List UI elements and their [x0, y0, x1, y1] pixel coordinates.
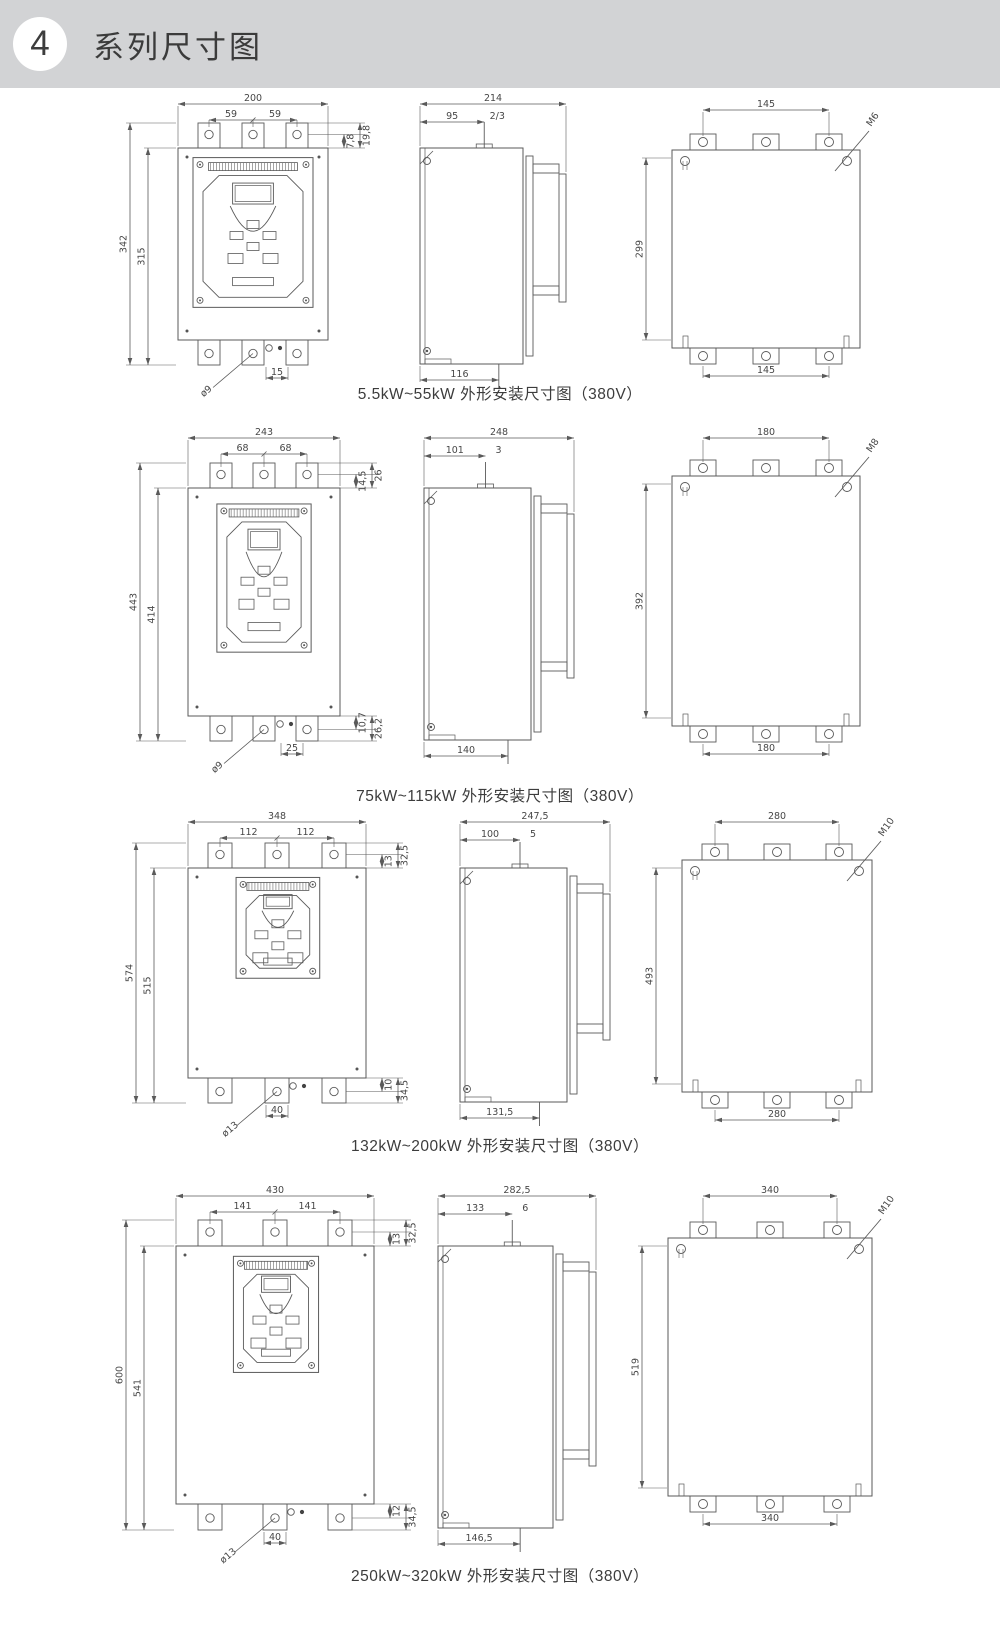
- side-view-drawing: 247,51005131,5: [434, 808, 626, 1130]
- dim-label: 40: [271, 1105, 283, 1116]
- dim-label: 95: [446, 111, 458, 122]
- dim-label: 214: [484, 93, 502, 104]
- dim-label: M10: [876, 816, 897, 839]
- dim-label: 145: [757, 365, 775, 376]
- drawings-area: 20059593423157,819,8ø915214952/311614529…: [0, 88, 1000, 1606]
- dim-label: 280: [768, 811, 786, 822]
- dim-label: 133: [466, 1203, 484, 1214]
- dim-label: 13: [384, 855, 395, 867]
- dim-label: 59: [269, 109, 281, 120]
- dim-label: 315: [137, 247, 148, 265]
- dim-label: 348: [268, 811, 286, 822]
- dim-label: 443: [129, 593, 140, 611]
- dim-label: 59: [225, 109, 237, 120]
- dim-label: 493: [645, 967, 656, 985]
- dim-label: 131,5: [486, 1107, 513, 1118]
- dim-label: 112: [239, 827, 257, 838]
- dim-label: 299: [635, 240, 646, 258]
- dim-label: 34,5: [400, 1080, 411, 1101]
- dim-label: 180: [757, 427, 775, 438]
- dim-label: 112: [296, 827, 314, 838]
- dimension-figure-row: 4301411416005411332,51234,5ø1340282,5133…: [0, 1160, 1000, 1606]
- dim-label: 7,8: [346, 134, 357, 149]
- dim-label: M6: [864, 111, 881, 129]
- dim-label: 15: [271, 367, 283, 378]
- dim-label: 26: [374, 469, 385, 481]
- section-number-badge: 4: [13, 17, 67, 71]
- dim-label: 340: [761, 1513, 779, 1524]
- front-view-drawing: 243686844341414,52610,726,2ø925: [122, 424, 406, 776]
- dim-label: M8: [864, 437, 881, 455]
- dim-label: 541: [133, 1379, 144, 1397]
- dim-label: 141: [233, 1201, 251, 1212]
- figure-caption: 250kW~320kW 外形安装尺寸图（380V）: [0, 1564, 1000, 1586]
- dim-label: 68: [279, 443, 291, 454]
- dim-label: 600: [115, 1366, 126, 1384]
- dim-label: 141: [298, 1201, 316, 1212]
- dim-label: 340: [761, 1185, 779, 1196]
- dim-label: M10: [876, 1194, 897, 1217]
- dim-label: 243: [255, 427, 273, 438]
- dim-label: 68: [236, 443, 248, 454]
- dim-label: 100: [481, 829, 499, 840]
- dim-label: 414: [147, 605, 158, 623]
- dimension-figure-row: 20059593423157,819,8ø915214952/311614529…: [0, 88, 1000, 408]
- dimension-figure-row: 243686844341414,52610,726,2ø925248101314…: [0, 408, 1000, 808]
- front-view-drawing: 20059593423157,819,8ø915: [112, 90, 402, 396]
- dim-label: 13: [392, 1233, 403, 1245]
- figure-caption: 75kW~115kW 外形安装尺寸图（380V）: [0, 784, 1000, 806]
- section-header: 4 系列尺寸图: [0, 0, 1000, 88]
- dim-label: 519: [631, 1358, 642, 1376]
- dim-label: 32,5: [400, 845, 411, 866]
- figure-caption: 5.5kW~55kW 外形安装尺寸图（380V）: [0, 382, 1000, 404]
- side-view-drawing: 282,51336146,5: [412, 1182, 606, 1554]
- front-view-drawing: 3481121125745151332,51034,5ø1340: [118, 808, 418, 1132]
- dim-label: 282,5: [503, 1185, 530, 1196]
- dim-label: 280: [768, 1109, 786, 1120]
- dim-label: 248: [490, 427, 508, 438]
- side-view-drawing: 214952/3116: [394, 90, 582, 392]
- dim-label: 140: [457, 745, 475, 756]
- rear-view-drawing: 280493280M10: [618, 808, 896, 1130]
- dim-label: 2/3: [490, 111, 505, 122]
- dim-label: 26,2: [374, 718, 385, 739]
- dim-label: 19,8: [362, 125, 373, 146]
- dim-label: 392: [635, 592, 646, 610]
- dim-label: 200: [244, 93, 262, 104]
- dim-label: 342: [119, 235, 130, 253]
- dim-label: 25: [286, 743, 298, 754]
- dim-label: 10: [384, 1079, 395, 1091]
- dimension-figure-row: 3481121125745151332,51034,5ø1340247,5100…: [0, 808, 1000, 1160]
- dim-label: 180: [757, 743, 775, 754]
- dim-label: 247,5: [521, 811, 548, 822]
- dim-label: 145: [757, 99, 775, 110]
- dim-label: 116: [450, 369, 468, 380]
- rear-view-drawing: 145299145M6: [606, 96, 884, 394]
- rear-view-drawing: 340519340M10: [604, 1182, 892, 1550]
- dim-label: 430: [266, 1185, 284, 1196]
- figure-caption: 132kW~200kW 外形安装尺寸图（380V）: [0, 1134, 1000, 1156]
- dim-label: 14,5: [358, 471, 369, 492]
- dim-label: 6: [522, 1203, 528, 1214]
- dim-label: 5: [530, 829, 536, 840]
- dim-label: 146,5: [465, 1533, 492, 1544]
- dim-label: 40: [269, 1532, 281, 1543]
- dim-label: 10,7: [358, 712, 369, 733]
- side-view-drawing: 2481013140: [398, 424, 586, 774]
- dim-label: 515: [143, 976, 154, 994]
- rear-view-drawing: 180392180M8: [606, 424, 884, 772]
- dim-label: 3: [495, 445, 501, 456]
- front-view-drawing: 4301411416005411332,51234,5ø1340: [108, 1182, 416, 1560]
- page-title: 系列尺寸图: [93, 22, 263, 67]
- dim-label: 12: [392, 1505, 403, 1517]
- dim-label: ø9: [209, 760, 225, 776]
- dim-label: 101: [446, 445, 464, 456]
- dim-label: 574: [125, 964, 136, 982]
